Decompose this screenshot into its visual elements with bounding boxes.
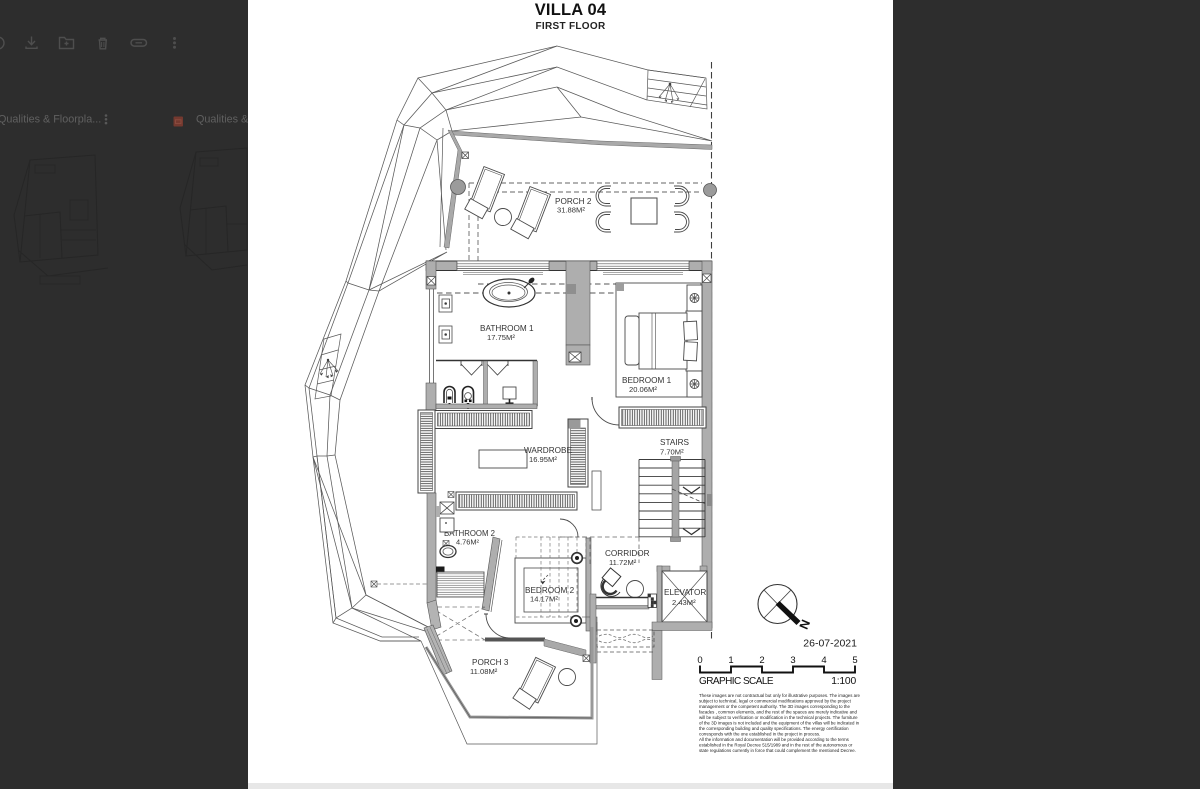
- svg-text:of the 3D images is not includ: of the 3D images is not included and the…: [699, 721, 860, 726]
- svg-text:4: 4: [821, 655, 826, 666]
- svg-text:7.70M²: 7.70M²: [660, 448, 684, 457]
- svg-text:corresponds with the one estab: corresponds with the one established in …: [699, 732, 820, 737]
- svg-text:1: 1: [728, 655, 733, 666]
- svg-text:5: 5: [852, 655, 857, 666]
- svg-text:14.17M²: 14.17M²: [530, 595, 558, 604]
- svg-text:ELEVATOR: ELEVATOR: [664, 588, 706, 597]
- svg-text:the corresponding building an: the corresponding building and quality s…: [699, 726, 849, 731]
- svg-text:2.43M²: 2.43M²: [672, 598, 696, 607]
- svg-text:BEDROOM 1: BEDROOM 1: [622, 376, 672, 385]
- svg-text:20.06M²: 20.06M²: [629, 385, 657, 394]
- svg-text:1:100: 1:100: [831, 676, 856, 687]
- svg-text:established in the Royal Decre: established in the Royal Decree 515/1989…: [699, 743, 853, 748]
- svg-text:management or the competent a: management or the competent authority. T…: [699, 704, 850, 709]
- svg-text:26-07-2021: 26-07-2021: [803, 638, 857, 650]
- svg-text:STAIRS: STAIRS: [660, 438, 690, 447]
- svg-text:subject to technical, legal or: subject to technical, legal or commercia…: [699, 699, 852, 704]
- svg-text:11.08M²: 11.08M²: [470, 667, 498, 676]
- svg-text:16.95M²: 16.95M²: [529, 455, 557, 464]
- svg-text:4.76M²: 4.76M²: [456, 538, 480, 547]
- svg-text:0: 0: [697, 655, 702, 666]
- svg-text:WARDROBE: WARDROBE: [524, 446, 572, 455]
- svg-text:These images are not contractu: These images are not contractual but onl…: [699, 693, 861, 698]
- svg-text:17.75M²: 17.75M²: [487, 333, 515, 342]
- svg-text:GRAPHIC SCALE: GRAPHIC SCALE: [699, 676, 774, 687]
- svg-text:BATHROOM 1: BATHROOM 1: [480, 324, 534, 333]
- svg-text:will be subject to verificatio: will be subject to verification or modif…: [699, 715, 858, 720]
- svg-text:Qualities & Floorpla...: Qualities & Floorpla...: [0, 114, 101, 126]
- svg-text:11.72M²: 11.72M²: [609, 558, 637, 567]
- svg-text:3: 3: [790, 655, 795, 666]
- svg-text:facades , common elements, and: facades , common elements, and the rest …: [699, 710, 857, 715]
- svg-text:CORRIDOR: CORRIDOR: [605, 549, 650, 558]
- svg-text:Qualities &: Qualities &: [196, 114, 248, 126]
- svg-text:All the information and docume: All the information and documentation wi…: [699, 737, 850, 742]
- svg-text:2: 2: [759, 655, 764, 666]
- svg-text:state regulations currently in: state regulations currently in force tha…: [699, 748, 856, 753]
- svg-text:PORCH 3: PORCH 3: [472, 658, 509, 667]
- svg-text:31.88M²: 31.88M²: [557, 206, 585, 215]
